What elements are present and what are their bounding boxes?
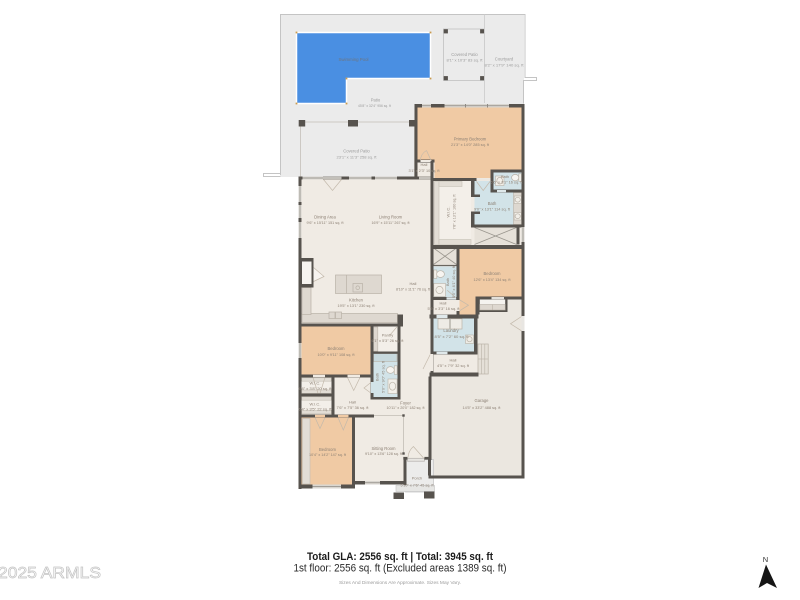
svg-text:5'9" x 3'3" 16 sq. ft: 5'9" x 3'3" 16 sq. ft [428,306,461,311]
svg-text:Covered Patio: Covered Patio [343,149,370,154]
svg-text:16'9" x 15'11" 267 sq. ft: 16'9" x 15'11" 267 sq. ft [372,220,411,225]
svg-text:21'3" x 14'0" 285 sq. ft: 21'3" x 14'0" 285 sq. ft [451,142,490,147]
svg-text:10'11" x 20'0" 182 sq. ft: 10'11" x 20'0" 182 sq. ft [387,405,426,410]
svg-text:W.I.C.: W.I.C. [446,207,451,218]
svg-text:12'6" x 13'4" 134 sq. ft: 12'6" x 13'4" 134 sq. ft [474,277,512,282]
svg-text:Hall: Hall [440,301,447,306]
svg-text:8'1" x 10'3" 83 sq. ft: 8'1" x 10'3" 83 sq. ft [447,58,484,63]
svg-text:W.I.C.: W.I.C. [310,381,321,386]
svg-text:9'10" x 13'6" 128 sq. ft: 9'10" x 13'6" 128 sq. ft [365,451,403,456]
svg-text:Pantry: Pantry [382,332,394,337]
svg-text:14'5" x 33'2" 488 sq. ft: 14'5" x 33'2" 488 sq. ft [463,405,502,410]
svg-text:4'5" x 7'9" 32 sq. ft: 4'5" x 7'9" 32 sq. ft [437,363,470,368]
svg-text:Swimming Pool: Swimming Pool [339,57,369,62]
svg-text:8'5" x 7'2" 60 sq. ft: 8'5" x 7'2" 60 sq. ft [435,334,470,339]
svg-text:Bath: Bath [445,278,450,286]
svg-text:N: N [763,555,768,564]
svg-text:5'0" x 9'0" 45 sq. ft: 5'0" x 9'0" 45 sq. ft [381,360,386,393]
svg-text:Garage: Garage [475,398,490,403]
svg-text:19'5" x 13'1" 230 sq. ft: 19'5" x 13'1" 230 sq. ft [338,303,376,308]
svg-text:1st floor: 2556 sq. ft (Exclud: 1st floor: 2556 sq. ft (Excluded areas 1… [294,563,507,575]
svg-text:Hall: Hall [349,400,356,405]
svg-text:7'8" x 13'1" 100 sq. ft: 7'8" x 13'1" 100 sq. ft [452,194,457,230]
svg-text:Sizes And Dimensions Are Appro: Sizes And Dimensions Are Approximate. Si… [339,580,461,586]
svg-text:23'1" x 11'3" 258 sq. ft: 23'1" x 11'3" 258 sq. ft [337,155,378,160]
svg-text:8'10" x 11'1" 76 sq. ft: 8'10" x 11'1" 76 sq. ft [396,287,431,292]
svg-text:Primary Bedroom: Primary Bedroom [454,137,487,142]
svg-text:9'6" x 15'11" 151 sq. ft: 9'6" x 15'11" 151 sq. ft [307,220,345,225]
svg-text:Hall: Hall [410,281,417,286]
svg-text:Covered Patio: Covered Patio [451,52,478,57]
svg-text:2025 ARMLS: 2025 ARMLS [0,565,101,582]
svg-text:Patio: Patio [371,98,381,103]
svg-text:45'8" x 32'4" 956 sq. ft: 45'8" x 32'4" 956 sq. ft [358,103,392,108]
svg-text:Courtyard: Courtyard [495,57,514,62]
svg-text:Bath: Bath [375,373,380,381]
svg-text:5'10" x 7'6" 45 sq. ft: 5'10" x 7'6" 45 sq. ft [401,483,435,488]
svg-text:5'0" x 8'1" 40 sq. ft: 5'0" x 8'1" 40 sq. ft [451,265,456,298]
svg-text:Bedroom: Bedroom [484,271,502,276]
svg-text:10'4" x 14'2" 147 sq. ft: 10'4" x 14'2" 147 sq. ft [309,452,347,457]
svg-text:Living Room: Living Room [379,215,403,220]
svg-text:Porch: Porch [412,476,422,481]
svg-text:6'8" x 3'8" 20 sq. ft: 6'8" x 3'8" 20 sq. ft [299,386,333,391]
svg-text:7'6" x 7'5" 36 sq. ft: 7'6" x 7'5" 36 sq. ft [337,405,370,410]
svg-text:8'2" x 17'9" 140 sq. ft: 8'2" x 17'9" 140 sq. ft [485,62,525,67]
svg-text:Total GLA: 2556 sq. ft | Total: Total GLA: 2556 sq. ft | Total: 3945 sq.… [307,551,493,563]
svg-text:Bedroom: Bedroom [328,346,346,351]
svg-text:Bath: Bath [488,201,497,206]
svg-text:10'0" x 9'11" 108 sq. ft: 10'0" x 9'11" 108 sq. ft [318,352,356,357]
svg-text:6'4" x 3'5" 22 sq. ft: 6'4" x 3'5" 22 sq. ft [299,407,333,412]
svg-text:Bath: Bath [501,174,509,179]
svg-text:9'0" x 13'1" 114 sq. ft: 9'0" x 13'1" 114 sq. ft [474,207,511,212]
svg-text:5'6" x 3'1" 16 sq. ft: 5'6" x 3'1" 16 sq. ft [491,180,524,185]
svg-text:Hall: Hall [421,162,428,167]
svg-text:Hall: Hall [450,358,457,363]
svg-text:3'1" x 2'3" 10 sq. ft: 3'1" x 2'3" 10 sq. ft [409,168,441,173]
svg-text:Laundry: Laundry [443,328,459,333]
svg-text:Dining Area: Dining Area [314,215,336,220]
svg-text:Kitchen: Kitchen [349,298,364,303]
svg-text:6'1" x 5'3" 26 sq. ft: 6'1" x 5'3" 26 sq. ft [372,338,405,343]
